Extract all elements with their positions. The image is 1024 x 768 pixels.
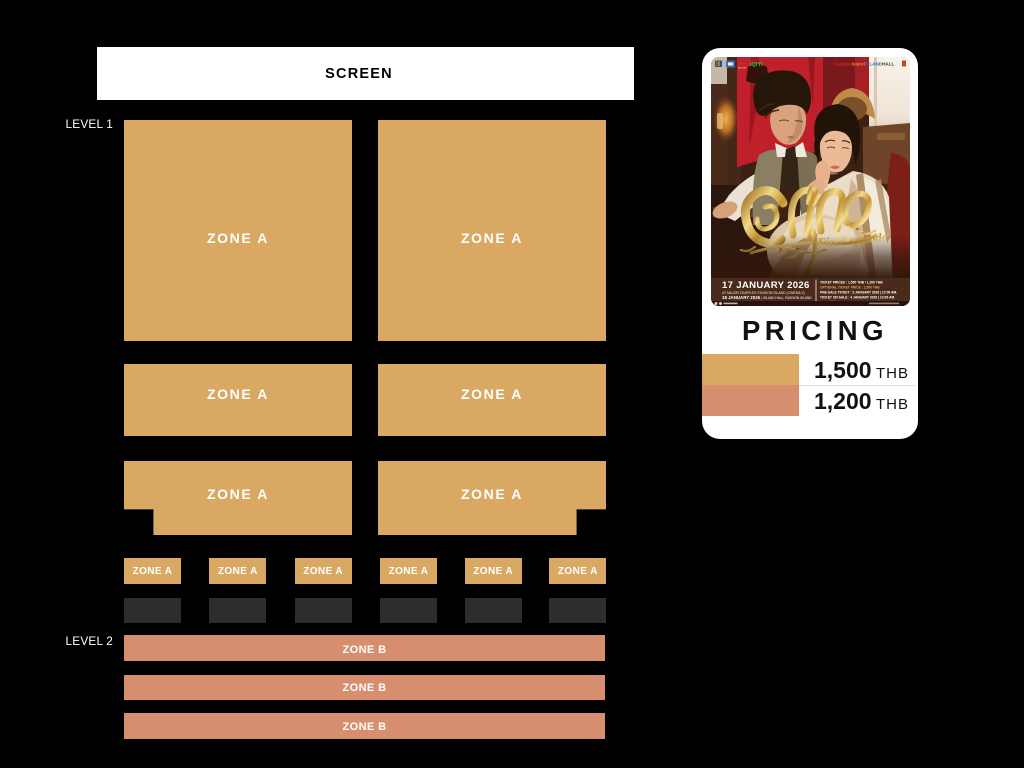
svg-text:TICKET ON SALE : 4 JANUARY 202: TICKET ON SALE : 4 JANUARY 2026 | 10:00 … xyxy=(820,295,895,299)
svg-text:FACTORY: FACTORY xyxy=(738,66,747,69)
svg-text:iQIYI: iQIYI xyxy=(750,62,763,68)
svg-text:PRE-SALE TICKET : 3 JANUARY 20: PRE-SALE TICKET : 3 JANUARY 2026 | 10:00… xyxy=(820,290,897,294)
svg-text:17 JANUARY 2026: 17 JANUARY 2026 xyxy=(722,280,810,291)
svg-text:ISLANDHALL: ISLANDHALL xyxy=(865,61,895,66)
svg-text:FashionIsland: FashionIsland xyxy=(834,61,865,66)
svg-text:18 JANUARY 2026 | ISLAND HALL,: 18 JANUARY 2026 | ISLAND HALL, FASHION I… xyxy=(722,295,812,300)
svg-text:TICKET PRICES : 1,500 THB / 1,: TICKET PRICES : 1,500 THB / 1,200 THB xyxy=(820,280,883,284)
svg-text:OPTIONAL TICKET PRICE : 2,500: OPTIONAL TICKET PRICE : 2,500 THB xyxy=(820,285,880,289)
